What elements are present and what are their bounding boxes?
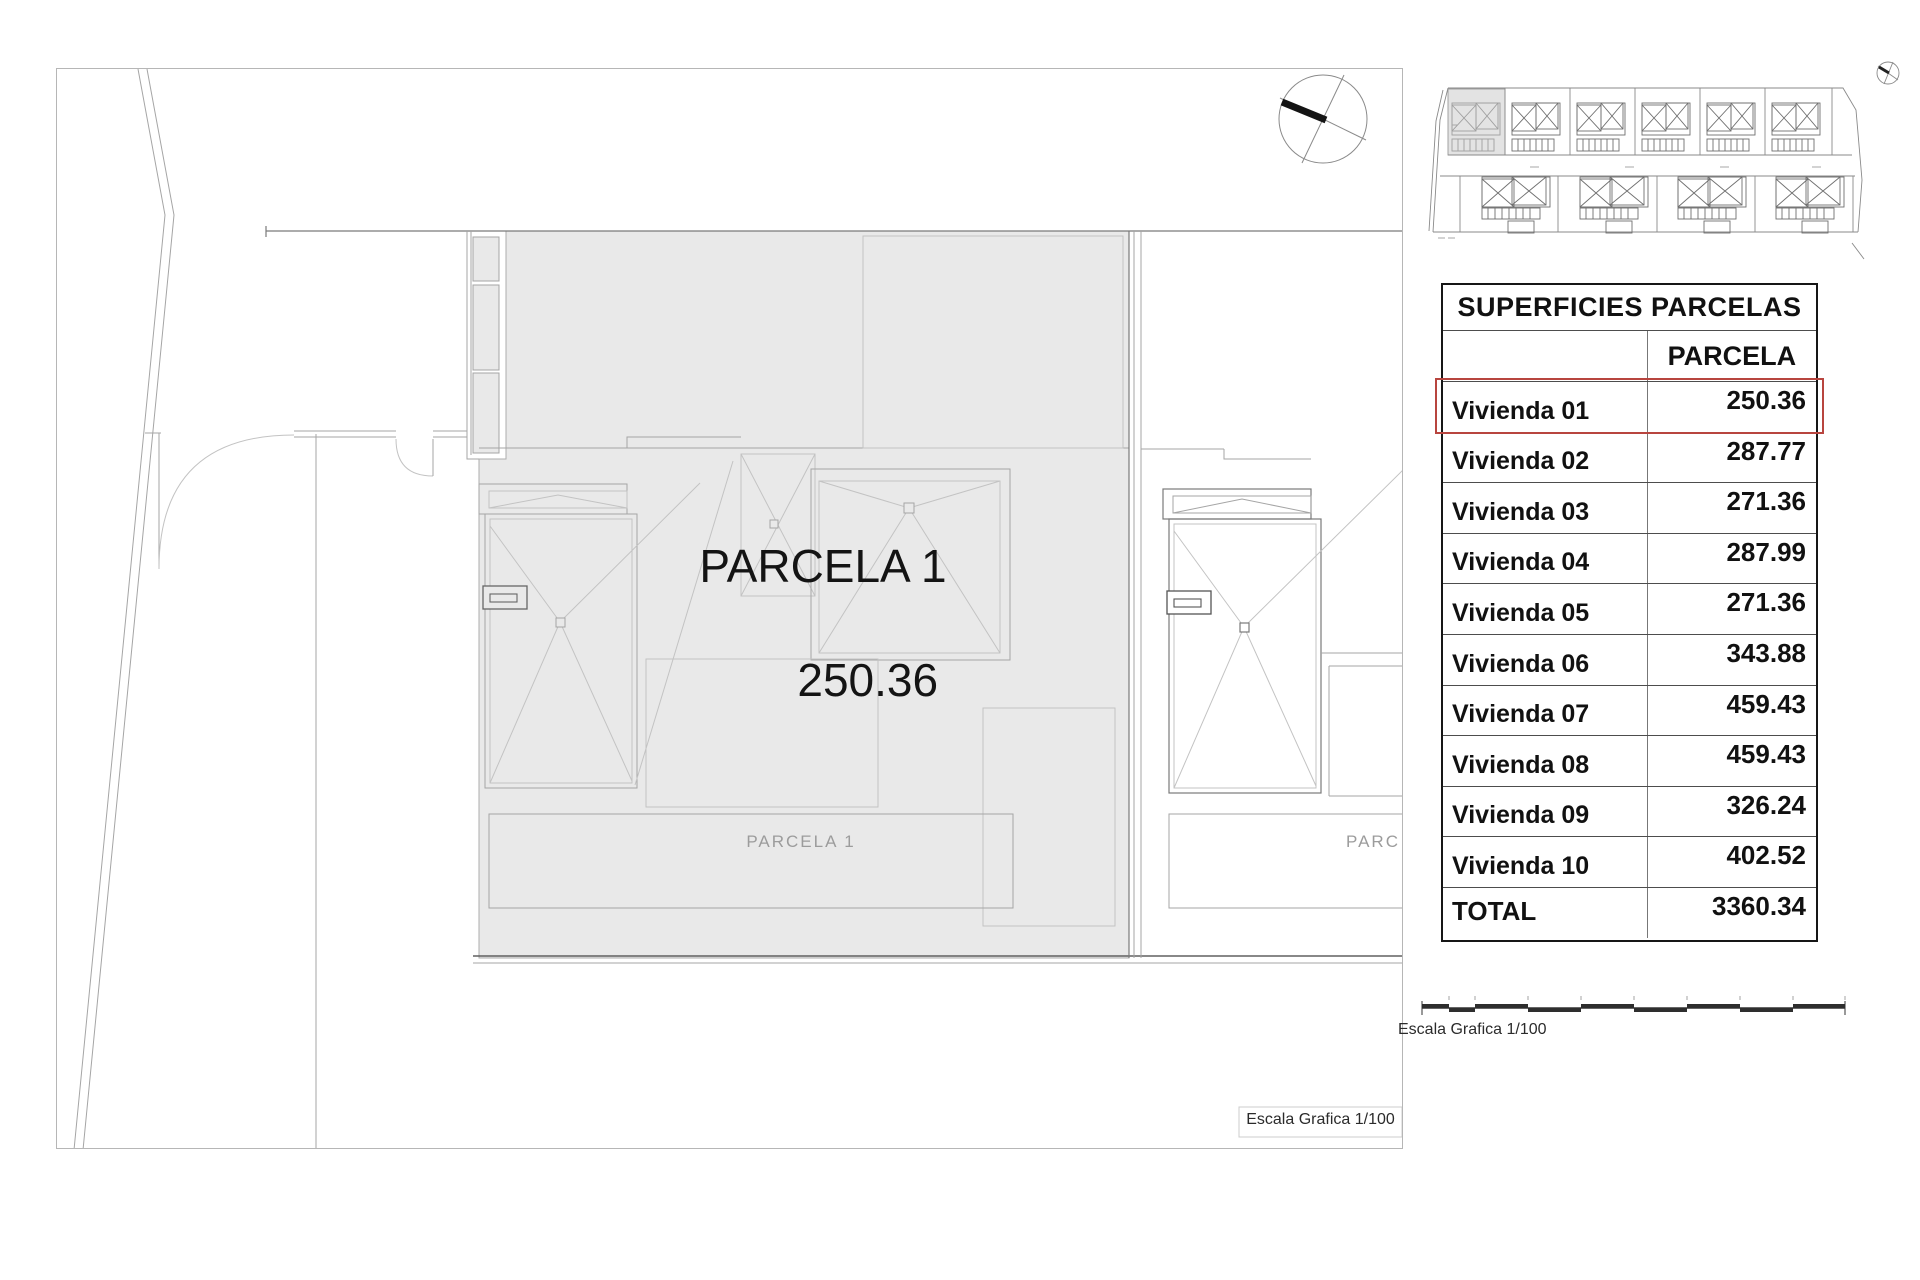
table-row-vivienda-05[interactable]: Vivienda 05 271.36 — [1443, 583, 1816, 634]
row-value: 459.43 — [1647, 736, 1816, 786]
table-row-total: TOTAL 3360.34 — [1443, 887, 1816, 938]
row-label: Vivienda 07 — [1443, 686, 1647, 736]
table-row-vivienda-06[interactable]: Vivienda 06 343.88 — [1443, 634, 1816, 685]
table-row-vivienda-04[interactable]: Vivienda 04 287.99 — [1443, 533, 1816, 584]
row-label: Vivienda 06 — [1443, 635, 1647, 685]
row-value: 459.43 — [1647, 686, 1816, 736]
row-label: Vivienda 02 — [1443, 433, 1647, 483]
row-value: 287.77 — [1647, 433, 1816, 483]
table-column-header-row: PARCELA — [1443, 330, 1816, 381]
row-value: 271.36 — [1647, 483, 1816, 533]
table-row-vivienda-03[interactable]: Vivienda 03 271.36 — [1443, 482, 1816, 533]
table-row-vivienda-09[interactable]: Vivienda 09 326.24 — [1443, 786, 1816, 837]
empty-header-cell — [1443, 331, 1647, 381]
table-row-vivienda-07[interactable]: Vivienda 07 459.43 — [1443, 685, 1816, 736]
parcela-column-header: PARCELA — [1647, 331, 1816, 381]
total-value: 3360.34 — [1647, 888, 1816, 938]
overview-map[interactable] — [1429, 62, 1899, 259]
row-label: Vivienda 05 — [1443, 584, 1647, 634]
row-label: Vivienda 03 — [1443, 483, 1647, 533]
table-row-vivienda-08[interactable]: Vivienda 08 459.43 — [1443, 735, 1816, 786]
row-label: Vivienda 08 — [1443, 736, 1647, 786]
scalebar-label: Escala Grafica 1/100 — [1398, 1021, 1547, 1039]
row-value: 402.52 — [1647, 837, 1816, 887]
table-row-vivienda-10[interactable]: Vivienda 10 402.52 — [1443, 836, 1816, 887]
row-label: Vivienda 04 — [1443, 534, 1647, 584]
graphic-scale-bar — [1422, 996, 1845, 1015]
row-value: 287.99 — [1647, 534, 1816, 584]
row-value: 326.24 — [1647, 787, 1816, 837]
overview-north-arrow-icon — [1877, 62, 1899, 84]
row-label: Vivienda 10 — [1443, 837, 1647, 887]
total-label: TOTAL — [1443, 888, 1647, 938]
row-value: 343.88 — [1647, 635, 1816, 685]
row-value: 271.36 — [1647, 584, 1816, 634]
overview-highlighted-parcel[interactable] — [1448, 89, 1505, 155]
selected-row-highlight — [1435, 378, 1824, 434]
table-row-vivienda-02[interactable]: Vivienda 02 287.77 — [1443, 432, 1816, 483]
table-title: SUPERFICIES PARCELAS — [1443, 285, 1816, 330]
row-label: Vivienda 09 — [1443, 787, 1647, 837]
